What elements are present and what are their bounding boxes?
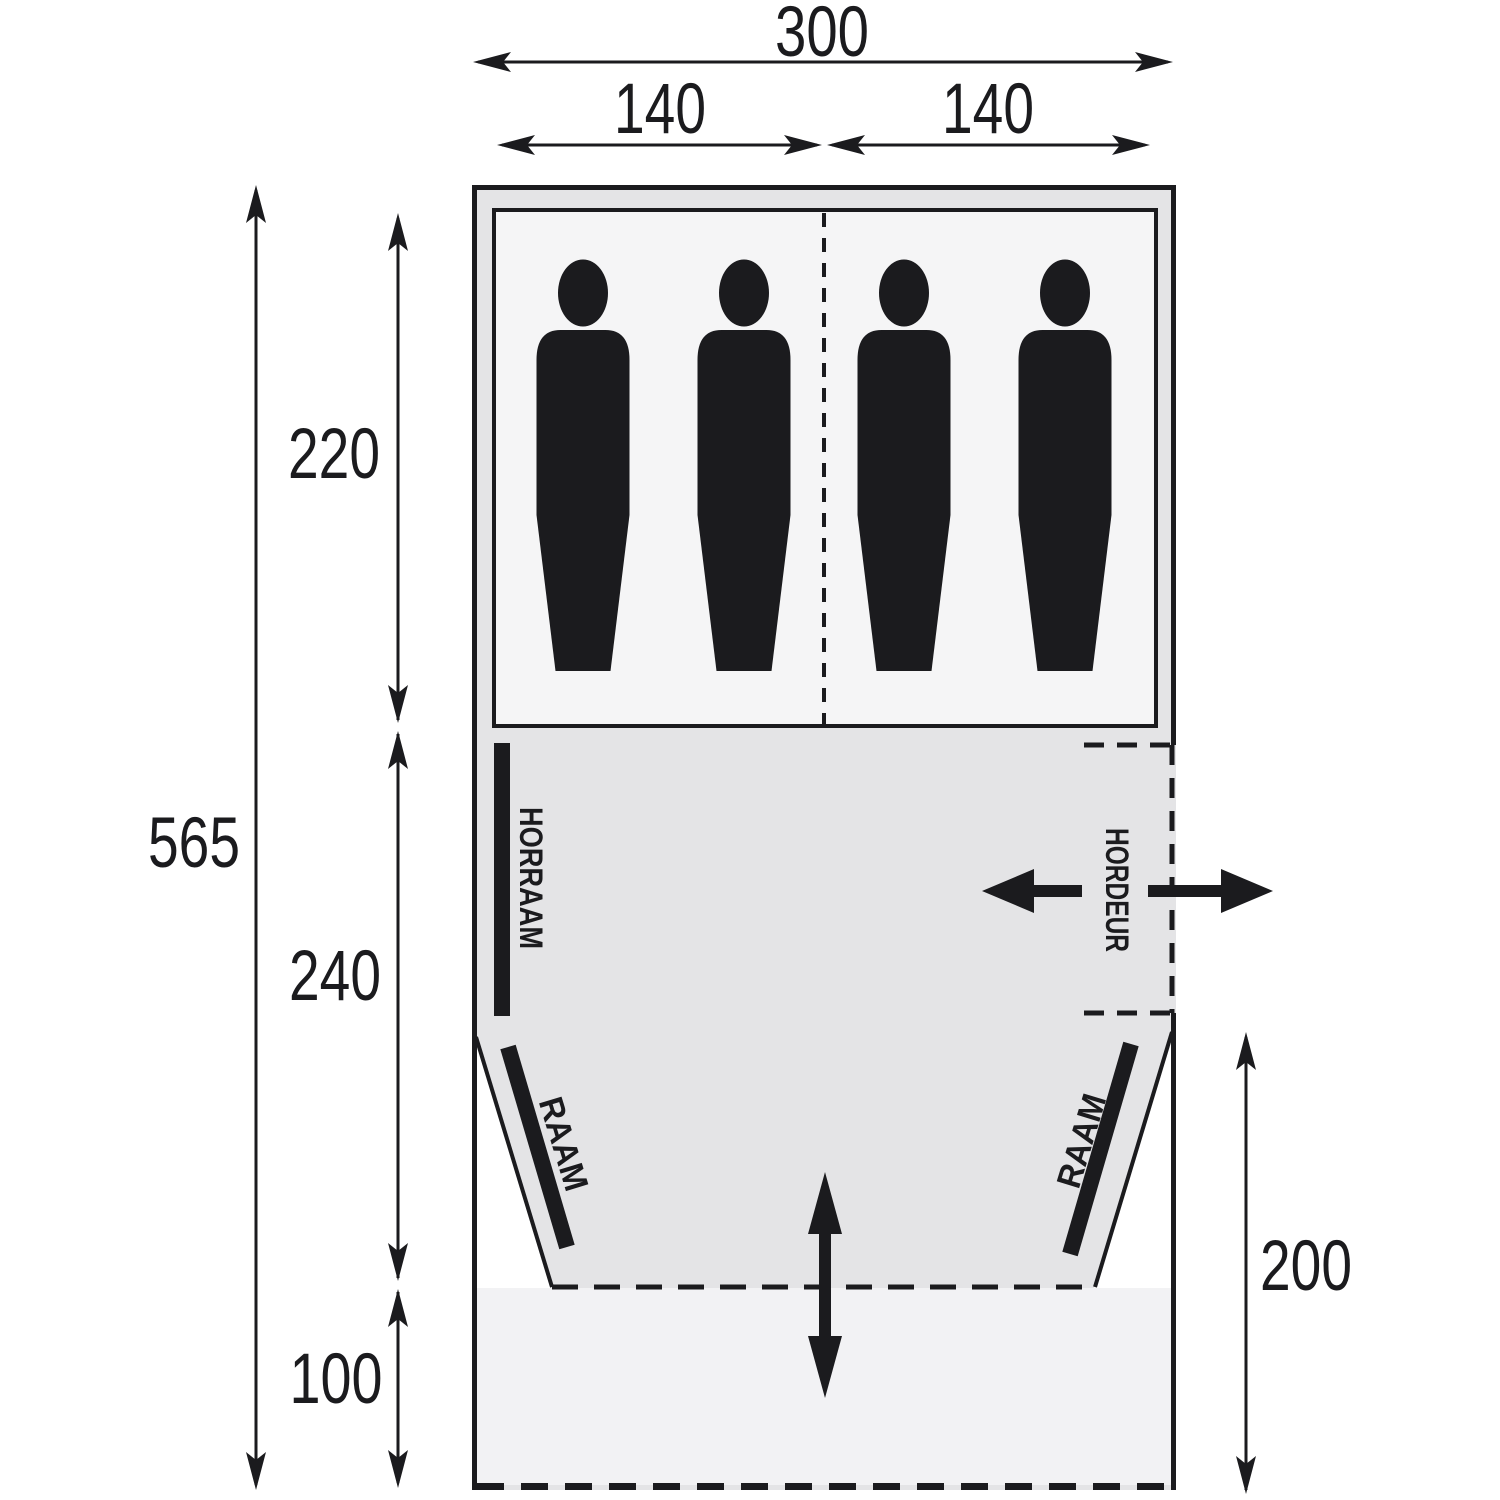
left-half-width-label: 140 (614, 70, 706, 149)
door-arrow-right-icon (1221, 869, 1273, 913)
dim-living-depth (388, 731, 408, 1281)
door-arrow-left-shaft (1030, 885, 1082, 897)
screen-door-label: HORDEUR (1099, 828, 1135, 952)
dim-side-door-depth (1236, 1032, 1256, 1494)
canopy-depth-label: 100 (290, 1340, 383, 1419)
total-depth-label: 565 (148, 804, 240, 883)
door-arrow-right-shaft (1148, 885, 1221, 897)
total-width-label: 300 (775, 0, 869, 72)
side-door-depth-label: 200 (1260, 1227, 1352, 1306)
floorplan-canvas: 300 140 140 565 220 240 100 200 HORRAAM … (0, 0, 1500, 1500)
screen-window-label: HORRAAM (513, 807, 549, 949)
right-half-width-label: 140 (942, 70, 1034, 149)
living-depth-label: 240 (289, 937, 381, 1016)
dim-total-depth (246, 185, 266, 1490)
dim-sleeping-depth (388, 213, 408, 723)
dim-canopy-depth (388, 1289, 408, 1488)
horraam-window-bar (494, 743, 510, 1016)
tent-floorplan-diagram: 300 140 140 565 220 240 100 200 HORRAAM … (0, 0, 1500, 1500)
sleeping-depth-label: 220 (288, 415, 380, 494)
